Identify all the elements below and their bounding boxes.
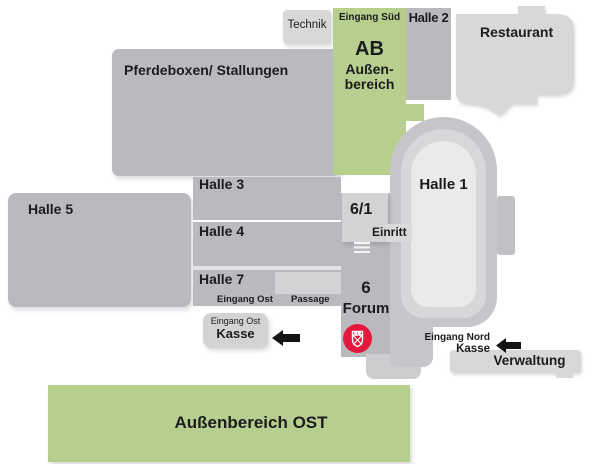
- halle1-east-annex: [497, 196, 515, 255]
- einritt-label: Einritt: [372, 226, 407, 239]
- eingang-sued-label: Eingang Süd: [333, 12, 406, 23]
- passage-area: [275, 272, 341, 294]
- stairs-icon: [354, 242, 370, 255]
- arrow-left-icon: [272, 330, 300, 346]
- kasse-ost-label: Kasse: [203, 327, 268, 341]
- fair-crest-logo-icon: [343, 324, 372, 353]
- pferdeboxen-label: Pferdeboxen/ Stallungen: [124, 63, 288, 78]
- halle1-infield: [411, 141, 476, 307]
- arrow-left-icon: [496, 338, 521, 353]
- forum-number-label: 6: [341, 279, 391, 298]
- halle5-label: Halle 5: [28, 202, 73, 217]
- aussenbereich-name-line2: bereich: [333, 77, 406, 92]
- halle2-label: Halle 2: [405, 11, 452, 25]
- restaurant-label: Restaurant: [480, 25, 553, 40]
- halle4-label: Halle 4: [199, 224, 244, 239]
- kasse-nord-label: Kasse: [405, 344, 490, 354]
- restaurant-shape: [456, 6, 574, 116]
- forum-label: Forum: [338, 301, 394, 318]
- aussenbereich-name-label: Außen- bereich: [333, 62, 406, 92]
- passage-label: Passage: [291, 295, 330, 305]
- venue-floor-plan: Technik Pferdeboxen/ Stallungen Eingang …: [0, 0, 600, 464]
- halle7-label: Halle 7: [199, 272, 244, 287]
- verwaltung-label: Verwaltung: [450, 354, 595, 369]
- halle-6-1-label: 6/1: [350, 201, 372, 219]
- aussenbereich-sued-annex: [405, 104, 424, 121]
- halle1-label: Halle 1: [390, 177, 497, 194]
- verwaltung-notch: [556, 371, 573, 378]
- kasse-nord-label-group: Eingang Nord Kasse: [405, 331, 490, 354]
- eingang-ost-strip-label: Eingang Ost: [217, 295, 273, 305]
- hall-divider: [193, 266, 341, 270]
- aussenbereich-ost-label: Außenbereich OST: [48, 414, 432, 433]
- aussenbereich-name-line1: Außen-: [333, 62, 406, 77]
- kasse-nord-entrance-label: Eingang Nord: [424, 332, 490, 343]
- ab-code-label: AB: [333, 38, 406, 60]
- halle3-label: Halle 3: [199, 177, 244, 192]
- hall-divider: [193, 220, 341, 222]
- technik-label: Technik: [283, 19, 331, 32]
